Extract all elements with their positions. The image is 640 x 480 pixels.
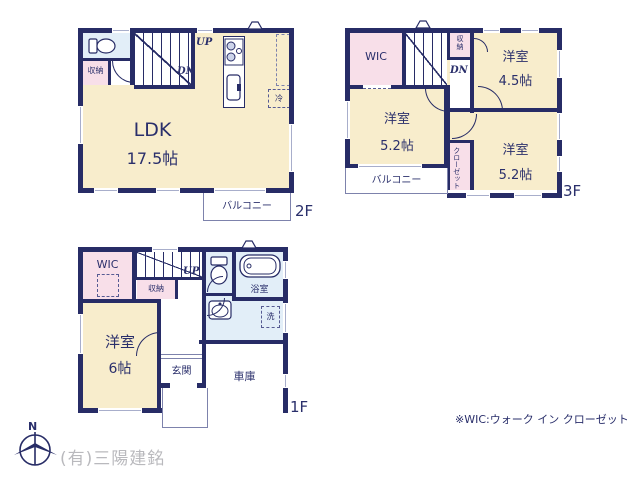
- balcony-3f: バルコニー: [345, 168, 448, 194]
- closet-label-3f: クローゼット: [452, 147, 460, 187]
- staircase-3f: [405, 33, 447, 85]
- stairs-up-label-1f: UP: [183, 266, 199, 277]
- refrigerator-box: 冷: [268, 89, 290, 108]
- garage-label: 車庫: [206, 371, 283, 383]
- stairs-down-label-2f: DN: [177, 66, 195, 77]
- stove-icon: [224, 38, 244, 66]
- bedroom52a-name-label: 洋室: [384, 108, 410, 127]
- bedroom52a-area-label: 5.2帖: [380, 135, 414, 154]
- wall-segment: [447, 33, 450, 60]
- ldk-label-group: LDK 17.5帖: [110, 119, 195, 169]
- entrance-step-line: [161, 354, 202, 355]
- bedroom52a-label-group: 洋室 5.2帖: [350, 108, 444, 154]
- balcony-2f: バルコニー: [203, 193, 291, 221]
- vent-icon: [241, 240, 257, 249]
- company-watermark: (有)三陽建銘: [60, 444, 165, 469]
- window: [197, 28, 213, 33]
- wic-opening: [363, 85, 391, 89]
- wall-segment: [108, 61, 111, 85]
- vent-icon: [247, 21, 263, 30]
- window: [78, 106, 83, 144]
- storage-label-2f: 収納: [85, 67, 106, 76]
- window: [152, 247, 178, 252]
- wall-segment: [135, 277, 203, 280]
- balcony-label-3f: バルコニー: [346, 175, 447, 186]
- bath-label: 浴室: [236, 286, 283, 296]
- window: [289, 124, 294, 172]
- window: [514, 193, 542, 198]
- laundry-box: 洗: [261, 306, 280, 328]
- entrance-label: 玄関: [161, 366, 202, 377]
- window: [283, 374, 288, 388]
- floor-label-2f: 2F: [295, 203, 313, 220]
- kitchen-sink-icon: [225, 72, 243, 104]
- floor-label-1f: 1F: [290, 399, 308, 416]
- storage-label-3f: 収納: [455, 36, 465, 51]
- window: [98, 408, 142, 413]
- wic-footnote: ※WIC:ウォーク イン クローゼット: [455, 411, 629, 427]
- wall-segment: [202, 252, 206, 340]
- window: [283, 303, 288, 333]
- balcony-label-2f: バルコニー: [204, 201, 290, 212]
- outer-wall-bottom-3f: [447, 193, 562, 198]
- laundry-label: 洗: [262, 313, 279, 322]
- floor-plan-page: { "colors": { "wall": "#272c66", "room_c…: [0, 0, 640, 480]
- window: [112, 28, 130, 33]
- window: [466, 193, 490, 198]
- storage-label-1f: 収納: [137, 285, 175, 294]
- ldk-area-label: 17.5帖: [127, 145, 179, 169]
- entrance-step-line: [161, 358, 202, 359]
- staircase-2f: [134, 33, 191, 85]
- compass-north-label: N: [28, 421, 37, 433]
- bedroom52b-area-label: 5.2帖: [499, 164, 533, 183]
- bedroom6-label-group: 洋室 6帖: [83, 331, 157, 378]
- toilet-icon: [88, 37, 118, 55]
- floor-label-3f: 3F: [563, 183, 581, 200]
- window: [94, 188, 118, 193]
- stairs-up-label-2f: UP: [196, 37, 212, 48]
- wic-label-1f: WIC: [83, 259, 132, 271]
- wall-segment: [191, 33, 195, 85]
- bedroom45-name-label: 洋室: [502, 46, 528, 65]
- bedroom6-name-label: 洋室: [105, 331, 135, 352]
- window: [156, 188, 180, 193]
- wall-segment: [402, 33, 405, 85]
- wic-label-3f: WIC: [350, 51, 402, 63]
- bedroom45-area-label: 4.5帖: [499, 70, 533, 89]
- bedroom6-area-label: 6帖: [109, 358, 132, 378]
- kitchen-cabinet-outline: [276, 34, 290, 86]
- window: [557, 50, 562, 78]
- wall-segment: [83, 299, 161, 303]
- bedroom52b-name-label: 洋室: [502, 139, 528, 158]
- stairs-down-label-3f: DN: [450, 65, 468, 76]
- ldk-name-label: LDK: [134, 119, 172, 141]
- entrance-porch: [162, 388, 208, 428]
- bedroom45-label-group: 洋室 4.5帖: [474, 46, 557, 89]
- wall-segment: [132, 252, 136, 300]
- window: [557, 113, 562, 140]
- wall-segment: [134, 85, 195, 89]
- window: [557, 156, 562, 172]
- refrigerator-label: 冷: [269, 95, 289, 104]
- wall-segment: [199, 340, 288, 344]
- wall-segment: [232, 297, 288, 301]
- window: [521, 28, 539, 33]
- sliding-door-window: [358, 164, 422, 168]
- bedroom52b-label-group: 洋室 5.2帖: [474, 139, 557, 183]
- window: [283, 261, 288, 279]
- vent-icon: [415, 20, 431, 29]
- window: [483, 28, 500, 33]
- bathtub-icon: [239, 254, 281, 278]
- wic-hanger-box: [97, 274, 119, 297]
- wall-segment: [175, 280, 178, 299]
